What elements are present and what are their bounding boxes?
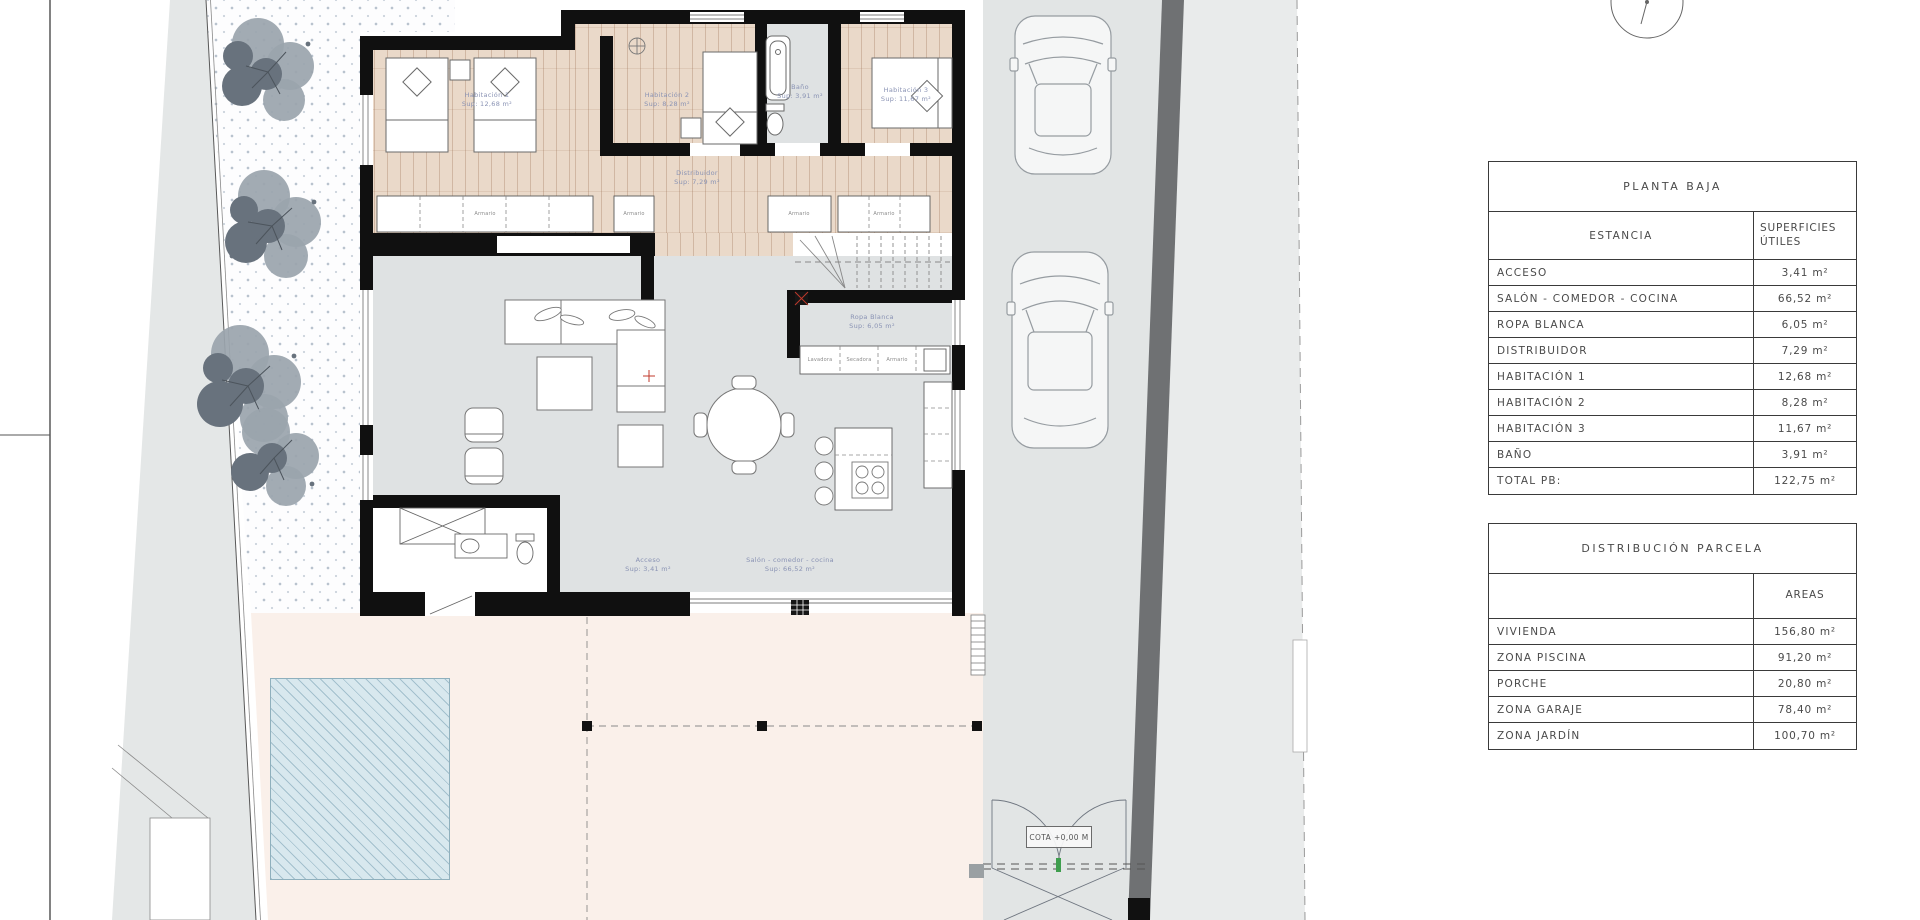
room-label-distribuidor: Distribuidor Sup: 7,29 m² [674, 169, 720, 187]
room-name: Habitación 3 [884, 86, 929, 94]
column-header-empty [1489, 574, 1753, 618]
table-header: AREAS [1489, 574, 1856, 619]
wall [787, 303, 800, 358]
row-value: 3,91 m² [1753, 442, 1856, 467]
closet-label: Armario [788, 211, 809, 217]
window [690, 12, 744, 22]
table-header: ESTANCIA SUPERFICIES ÚTILES [1489, 212, 1856, 260]
room-name: Baño [791, 83, 809, 91]
row-value: 66,52 m² [1753, 286, 1856, 311]
row-label: ZONA GARAJE [1489, 697, 1753, 722]
header-line: SUPERFICIES [1760, 222, 1836, 234]
column-header-areas: AREAS [1753, 574, 1856, 618]
room-area: Sup: 11,67 m² [881, 95, 931, 103]
window [360, 455, 373, 500]
row-label: ACCESO [1489, 260, 1753, 285]
wall [755, 24, 767, 145]
gate-datum-tick [1056, 858, 1061, 872]
row-value: 20,80 m² [1753, 671, 1856, 696]
wall [360, 36, 373, 95]
table-title: DISTRIBUCIÓN PARCELA [1489, 524, 1856, 574]
row-value: 11,67 m² [1753, 416, 1856, 441]
architectural-site-plan: Habitación 1 Sup: 12,68 m² Habitación 2 … [0, 0, 1920, 920]
room-area: Sup: 8,28 m² [644, 100, 690, 108]
row-value: 122,75 m² [1753, 468, 1856, 494]
distribucion-parcela-table: DISTRIBUCIÓN PARCELA AREAS VIVIENDA 156,… [1488, 523, 1857, 750]
window [952, 300, 965, 345]
door-opening [775, 143, 820, 156]
room-label-habitacion2: Habitación 2 Sup: 8,28 m² [644, 91, 690, 109]
row-label: ZONA PISCINA [1489, 645, 1753, 670]
wall [952, 345, 965, 390]
boundary-wall-end [1128, 898, 1150, 920]
row-value: 78,40 m² [1753, 697, 1856, 722]
row-label: TOTAL PB: [1489, 468, 1753, 494]
wall [547, 508, 560, 592]
swimming-pool [270, 678, 450, 880]
wall [360, 592, 690, 616]
table-row-total: TOTAL PB: 122,75 m² [1489, 468, 1856, 494]
table-row: SALÓN - COMEDOR - COCINA 66,52 m² [1489, 286, 1856, 312]
gate-line [983, 864, 1145, 869]
bedroom1-wood-floor [361, 50, 575, 233]
row-value: 156,80 m² [1753, 619, 1856, 644]
window [360, 95, 373, 165]
compass-icon [1611, 0, 1683, 38]
laundry-label: Armario [886, 357, 907, 363]
neighbour-steps [150, 818, 210, 920]
wall [361, 36, 575, 50]
room-area: Sup: 66,52 m² [765, 565, 815, 573]
cota-label: COTA +0,00 M [1026, 826, 1092, 848]
row-value: 7,29 m² [1753, 338, 1856, 363]
row-label: ZONA JARDÍN [1489, 723, 1753, 749]
row-value: 12,68 m² [1753, 364, 1856, 389]
row-value: 6,05 m² [1753, 312, 1856, 337]
wall [828, 24, 841, 145]
wall [561, 10, 965, 24]
room-label-bano: Baño Sup: 3,91 m² [777, 83, 823, 101]
room-area: Sup: 12,68 m² [462, 100, 512, 108]
room-label-habitacion1: Habitación 1 Sup: 12,68 m² [462, 91, 512, 109]
table-row: VIVIENDA 156,80 m² [1489, 619, 1856, 645]
wall [952, 470, 965, 616]
gate [992, 800, 1126, 920]
room-area: Sup: 3,41 m² [625, 565, 671, 573]
room-label-ropa-blanca: Ropa Blanca Sup: 6,05 m² [849, 313, 895, 331]
row-label: ROPA BLANCA [1489, 312, 1753, 337]
window [360, 290, 373, 425]
wall [373, 495, 560, 508]
door-opening [865, 143, 910, 156]
row-label: HABITACIÓN 3 [1489, 416, 1753, 441]
row-value: 8,28 m² [1753, 390, 1856, 415]
row-label: HABITACIÓN 1 [1489, 364, 1753, 389]
row-label: DISTRIBUIDOR [1489, 338, 1753, 363]
table-row: ZONA GARAJE 78,40 m² [1489, 697, 1856, 723]
room-label-habitacion3: Habitación 3 Sup: 11,67 m² [881, 86, 931, 104]
room-name: Acceso [636, 556, 661, 564]
driveway [983, 0, 1162, 920]
road-boundary-dashed [1297, 0, 1305, 920]
room-label-acceso: Acceso Sup: 3,41 m² [625, 556, 671, 574]
laundry-label: Lavadora [808, 357, 833, 363]
room-name: Salón - comedor - cocina [746, 556, 834, 564]
room-area: Sup: 7,29 m² [674, 178, 720, 186]
row-label: BAÑO [1489, 442, 1753, 467]
row-label: VIVIENDA [1489, 619, 1753, 644]
window [860, 12, 904, 22]
room-area: Sup: 3,91 m² [777, 92, 823, 100]
toilet-room-floor [373, 508, 553, 592]
room-name: Ropa Blanca [850, 313, 894, 321]
table-row: ZONA JARDÍN 100,70 m² [1489, 723, 1856, 749]
row-label: HABITACIÓN 2 [1489, 390, 1753, 415]
closet-label: Armario [873, 211, 894, 217]
table-row: DISTRIBUIDOR 7,29 m² [1489, 338, 1856, 364]
entrance-door [425, 592, 475, 616]
closet-label: Armario [623, 211, 644, 217]
table-row: ROPA BLANCA 6,05 m² [1489, 312, 1856, 338]
wall [360, 425, 373, 455]
wall [787, 290, 952, 303]
table-row: BAÑO 3,91 m² [1489, 442, 1856, 468]
boundary-wall-strip [1128, 0, 1184, 920]
room-name: Habitación 1 [465, 91, 510, 99]
room-name: Distribuidor [676, 169, 718, 177]
row-value: 100,70 m² [1753, 723, 1856, 749]
road [1150, 0, 1305, 920]
wall [561, 10, 575, 50]
row-label: SALÓN - COMEDOR - COCINA [1489, 286, 1753, 311]
planta-baja-table: PLANTA BAJA ESTANCIA SUPERFICIES ÚTILES … [1488, 161, 1857, 495]
car [1007, 16, 1116, 448]
laundry-label: Secadora [846, 357, 871, 363]
room-area: Sup: 6,05 m² [849, 322, 895, 330]
table-row: HABITACIÓN 1 12,68 m² [1489, 364, 1856, 390]
wall [641, 256, 654, 303]
closet-label: Armario [474, 211, 495, 217]
table-row: HABITACIÓN 2 8,28 m² [1489, 390, 1856, 416]
column-header-superficies: SUPERFICIES ÚTILES [1753, 212, 1856, 259]
room-name: Habitación 2 [645, 91, 690, 99]
column-header-estancia: ESTANCIA [1489, 212, 1753, 259]
table-row: PORCHE 20,80 m² [1489, 671, 1856, 697]
header-line: ÚTILES [1760, 236, 1801, 248]
sliding-door-opening [497, 236, 630, 253]
window [952, 390, 965, 470]
row-value: 3,41 m² [1753, 260, 1856, 285]
row-value: 91,20 m² [1753, 645, 1856, 670]
wall [360, 165, 373, 290]
wall [600, 36, 613, 156]
door-opening [690, 143, 740, 156]
room-label-salon: Salón - comedor - cocina Sup: 66,52 m² [746, 556, 834, 574]
table-row: ACCESO 3,41 m² [1489, 260, 1856, 286]
row-label: PORCHE [1489, 671, 1753, 696]
table-title: PLANTA BAJA [1489, 162, 1856, 212]
road-notch [1293, 640, 1307, 752]
table-row: ZONA PISCINA 91,20 m² [1489, 645, 1856, 671]
table-row: HABITACIÓN 3 11,67 m² [1489, 416, 1856, 442]
